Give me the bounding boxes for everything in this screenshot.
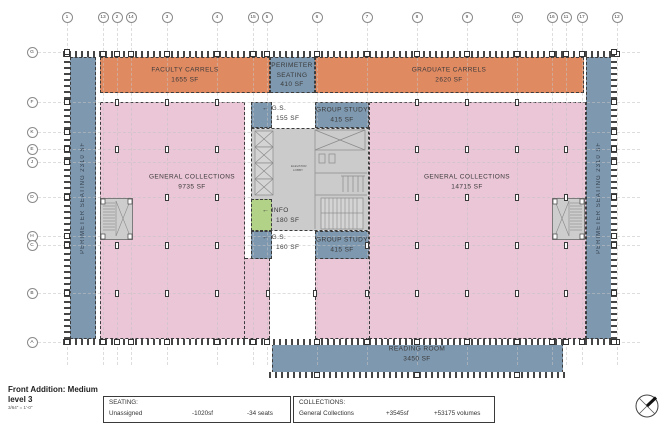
wall-column-square bbox=[314, 51, 320, 57]
grid-line-horizontal bbox=[38, 293, 640, 294]
grid-bubble-row: K bbox=[27, 127, 38, 138]
column-marker bbox=[165, 194, 169, 201]
wall-column-square bbox=[464, 51, 470, 57]
wall-column-square bbox=[611, 194, 617, 200]
zone-label-general-collections-left: GENERAL COLLECTIONS9735 SF bbox=[149, 173, 235, 192]
column-marker bbox=[465, 242, 469, 249]
wall-column-square bbox=[264, 51, 270, 57]
wall-column-square bbox=[611, 49, 617, 55]
grid-line-vertical bbox=[552, 23, 553, 365]
grid-bubble-row: F bbox=[27, 97, 38, 108]
column-marker bbox=[515, 290, 519, 297]
leader-arrow-icon: ← bbox=[262, 207, 269, 214]
column-marker bbox=[115, 290, 119, 297]
column-marker bbox=[165, 290, 169, 297]
wall-column-square bbox=[514, 51, 520, 57]
grid-bubble-column: 3 bbox=[162, 12, 173, 23]
column-marker bbox=[215, 146, 219, 153]
wall-column-square bbox=[64, 290, 70, 296]
grid-bubble-column: 15 bbox=[248, 12, 259, 23]
column-marker bbox=[564, 146, 568, 153]
zone-label-graduate-carrels: GRADUATE CARRELS2620 SF bbox=[412, 66, 487, 85]
legend-collections-heading: COLLECTIONS: bbox=[299, 399, 345, 406]
grid-bubble-row: G bbox=[27, 47, 38, 58]
column-marker bbox=[515, 194, 519, 201]
column-marker bbox=[415, 99, 419, 106]
column-marker bbox=[564, 194, 568, 201]
leader-arrow-icon: ← bbox=[262, 105, 269, 112]
wall-column-square bbox=[464, 339, 470, 345]
grid-line-vertical bbox=[582, 23, 583, 365]
wall-column-square bbox=[64, 129, 70, 135]
north-arrow-icon bbox=[633, 393, 661, 421]
column-marker bbox=[515, 242, 519, 249]
grid-line-vertical bbox=[117, 23, 118, 365]
column-marker bbox=[115, 99, 119, 106]
wall-column-square bbox=[264, 339, 270, 345]
grid-bubble-column: 5 bbox=[262, 12, 273, 23]
column-marker bbox=[313, 290, 317, 297]
zone-label-group-study-bottom: GROUP STUDY415 SF bbox=[316, 236, 368, 255]
wall-column-square bbox=[611, 242, 617, 248]
column-marker bbox=[564, 290, 568, 297]
grid-line-vertical bbox=[103, 23, 104, 365]
grid-bubble-column: 6 bbox=[312, 12, 323, 23]
wall-column-square bbox=[611, 99, 617, 105]
grid-bubble-row: E bbox=[27, 144, 38, 155]
legend-seating: SEATING: Unassigned -1020sf -34 seats bbox=[103, 396, 291, 423]
zone-label-info: ← INFO 180 SF bbox=[262, 206, 299, 226]
wall-column-square bbox=[100, 51, 106, 57]
plan-scale: 3/64" = 1'-0" bbox=[8, 405, 98, 410]
wall-column-square bbox=[64, 146, 70, 152]
column-marker bbox=[165, 99, 169, 106]
grid-line-vertical bbox=[617, 23, 618, 365]
column-marker bbox=[266, 290, 270, 297]
leader-arrow-icon: ← bbox=[262, 234, 269, 241]
wall-column-square bbox=[164, 51, 170, 57]
column-marker bbox=[215, 290, 219, 297]
wall-column-square bbox=[579, 339, 585, 345]
zone-perimeter-seating-left: PERIMETER SEATING 2310 SF bbox=[70, 57, 96, 339]
column-marker bbox=[215, 242, 219, 249]
grid-bubble-column: 16 bbox=[547, 12, 558, 23]
column-marker bbox=[415, 146, 419, 153]
column-marker bbox=[165, 146, 169, 153]
zone-perimeter-seating-right: PERIMETER SEATING 2310 SF bbox=[586, 57, 612, 339]
grid-bubble-column: 8 bbox=[412, 12, 423, 23]
stair-right bbox=[552, 198, 585, 240]
column-marker bbox=[365, 290, 369, 297]
grid-bubble-column: 10 bbox=[512, 12, 523, 23]
column-marker bbox=[564, 242, 568, 249]
wall-column-square bbox=[549, 51, 555, 57]
floor-plan: PERIMETER SEATING 2310 SF PERIMETER SEAT… bbox=[0, 0, 670, 443]
grid-bubble-row: A bbox=[27, 337, 38, 348]
wall-column-square bbox=[64, 49, 70, 55]
grid-bubble-column: 7 bbox=[362, 12, 373, 23]
grid-bubble-column: 4 bbox=[212, 12, 223, 23]
wall-column-square bbox=[250, 339, 256, 345]
legend-collections-sf: +3545sf bbox=[386, 410, 409, 417]
column-marker bbox=[465, 290, 469, 297]
core-label-line2: LOBBY bbox=[293, 168, 303, 172]
wall-north bbox=[63, 51, 617, 57]
column-marker bbox=[415, 242, 419, 249]
wall-column-square bbox=[64, 99, 70, 105]
zone-label-perimeter-seating-top: PERIMETER SEATING 410 SF bbox=[271, 61, 313, 90]
grid-bubble-column: 17 bbox=[577, 12, 588, 23]
wall-column-square bbox=[64, 194, 70, 200]
wall-column-square bbox=[414, 51, 420, 57]
column-marker bbox=[515, 146, 519, 153]
zone-label-gs-bottom: ← G.S. 160 SF bbox=[262, 233, 299, 253]
wall-column-square bbox=[414, 372, 420, 378]
grid-bubble-row: C bbox=[27, 240, 38, 251]
column-marker bbox=[465, 194, 469, 201]
wall-column-square bbox=[164, 339, 170, 345]
column-marker bbox=[415, 290, 419, 297]
wall-column-square bbox=[64, 339, 70, 345]
wall-column-square bbox=[128, 51, 134, 57]
wall-column-square bbox=[611, 290, 617, 296]
zone-label-reading-room: READING ROOM3450 SF bbox=[389, 345, 445, 364]
column-marker bbox=[215, 99, 219, 106]
wall-column-square bbox=[563, 51, 569, 57]
grid-bubble-column: 1 bbox=[62, 12, 73, 23]
column-marker bbox=[415, 194, 419, 201]
wall-column-square bbox=[214, 339, 220, 345]
wall-column-square bbox=[100, 339, 106, 345]
legend-seating-heading: SEATING: bbox=[109, 399, 138, 406]
grid-bubble-row: B bbox=[27, 288, 38, 299]
grid-bubble-row: J bbox=[27, 157, 38, 168]
grid-bubble-row: D bbox=[27, 192, 38, 203]
column-marker bbox=[115, 146, 119, 153]
wall-column-square bbox=[563, 339, 569, 345]
zone-label-group-study-top: GROUP STUDY415 SF bbox=[316, 106, 368, 125]
wall-column-square bbox=[611, 159, 617, 165]
wall-column-square bbox=[611, 129, 617, 135]
wall-column-square bbox=[611, 233, 617, 239]
legend-seating-name: Unassigned bbox=[109, 410, 142, 417]
zone-label-general-collections-right: GENERAL COLLECTIONS14715 SF bbox=[424, 173, 510, 192]
wall-column-square bbox=[314, 372, 320, 378]
grid-bubble-column: 11 bbox=[561, 12, 572, 23]
plan-level: level 3 bbox=[8, 395, 98, 405]
wall-column-square bbox=[114, 339, 120, 345]
legend-collections: COLLECTIONS: General Collections +3545sf… bbox=[293, 396, 495, 423]
legend-collections-name: General Collections bbox=[299, 410, 354, 417]
stair-left bbox=[100, 198, 133, 240]
column-marker bbox=[465, 99, 469, 106]
wall-column-square bbox=[64, 233, 70, 239]
column-marker bbox=[515, 99, 519, 106]
grid-line-horizontal bbox=[38, 102, 640, 103]
title-block: Front Addition: Medium level 3 3/64" = 1… bbox=[8, 385, 98, 410]
wall-column-square bbox=[549, 339, 555, 345]
grid-bubble-column: 13 bbox=[98, 12, 109, 23]
column-marker bbox=[465, 146, 469, 153]
grid-bubble-column: 14 bbox=[126, 12, 137, 23]
wall-column-square bbox=[611, 146, 617, 152]
wall-column-square bbox=[579, 51, 585, 57]
wall-column-square bbox=[364, 51, 370, 57]
wall-column-square bbox=[514, 372, 520, 378]
column-marker bbox=[165, 242, 169, 249]
wall-column-square bbox=[250, 51, 256, 57]
wall-column-square bbox=[128, 339, 134, 345]
wall-column-square bbox=[64, 159, 70, 165]
wall-south bbox=[63, 339, 617, 345]
column-marker bbox=[215, 194, 219, 201]
zone-label-faculty-carrels: FACULTY CARRELS1655 SF bbox=[151, 66, 218, 85]
wall-column-square bbox=[514, 339, 520, 345]
legend-seating-sf: -1020sf bbox=[192, 410, 213, 417]
wall-column-square bbox=[611, 339, 617, 345]
legend-collections-detail: +53175 volumes bbox=[434, 410, 480, 417]
wall-column-square bbox=[364, 339, 370, 345]
grid-bubble-column: 2 bbox=[112, 12, 123, 23]
zone-label-gs-top: ← G.S. 155 SF bbox=[262, 104, 299, 124]
column-marker bbox=[115, 242, 119, 249]
wall-column-square bbox=[114, 51, 120, 57]
wall-column-square bbox=[314, 339, 320, 345]
wall-column-square bbox=[214, 51, 220, 57]
wall-column-square bbox=[64, 242, 70, 248]
grid-bubble-column: 12 bbox=[612, 12, 623, 23]
grid-line-vertical bbox=[131, 23, 132, 365]
plan-title: Front Addition: Medium bbox=[8, 385, 98, 395]
legend-seating-detail: -34 seats bbox=[247, 410, 273, 417]
grid-bubble-column: 9 bbox=[462, 12, 473, 23]
zone-general-collections-right-extension bbox=[315, 258, 369, 339]
